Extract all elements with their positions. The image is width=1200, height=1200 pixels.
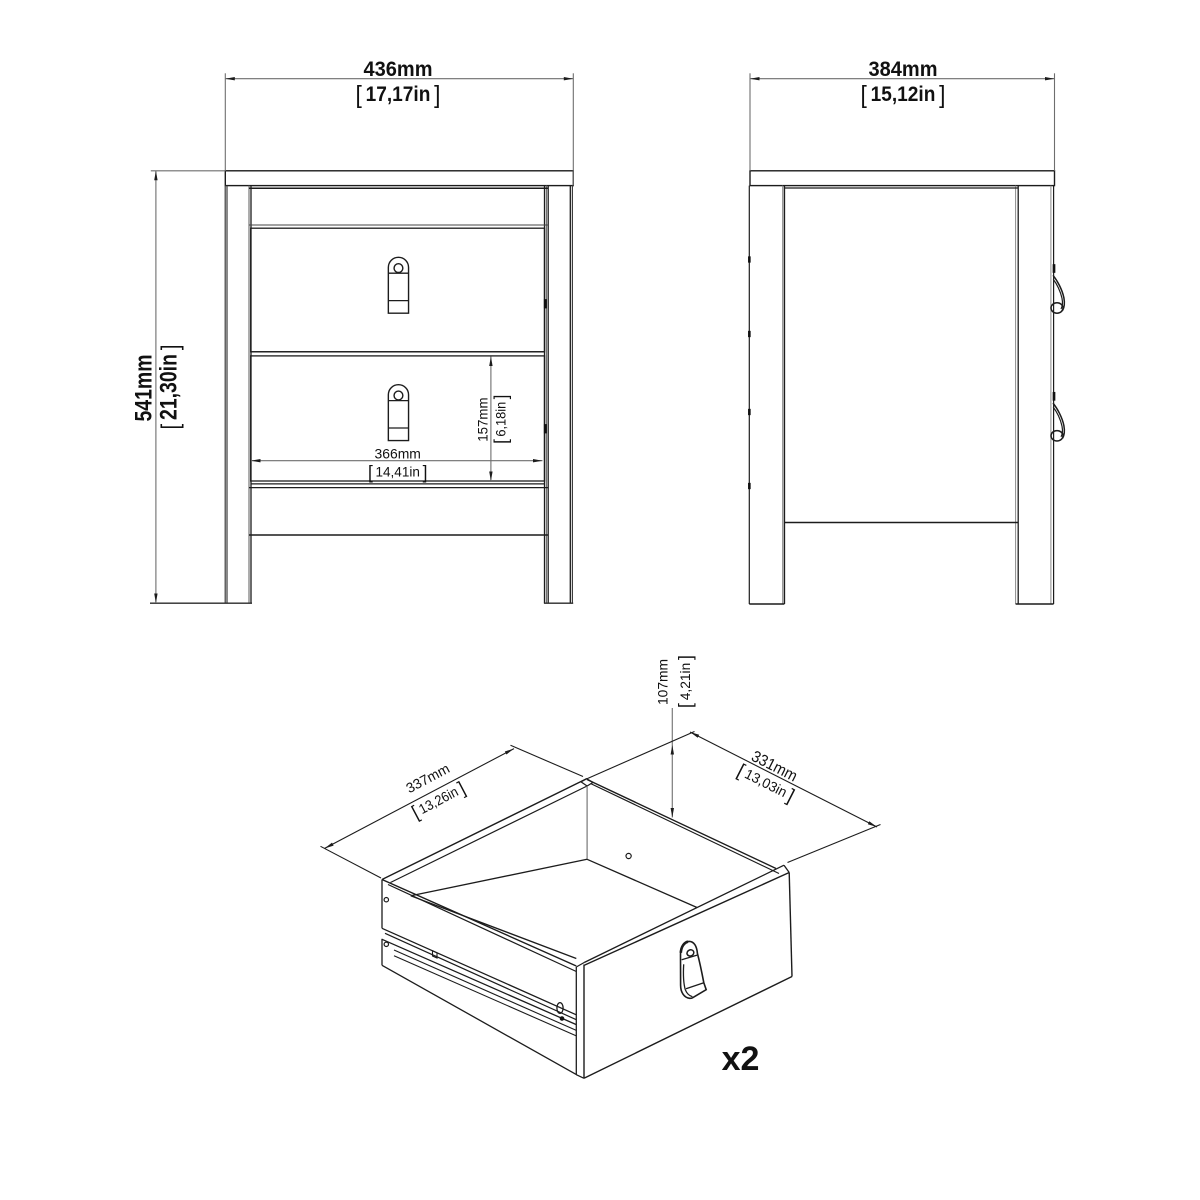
svg-text:[ 21,30in ]: [ 21,30in ] xyxy=(156,345,185,430)
svg-text:541mm: 541mm xyxy=(131,355,158,422)
svg-text:[ 15,12in ]: [ 15,12in ] xyxy=(861,81,946,109)
svg-text:366mm: 366mm xyxy=(375,445,421,461)
svg-text:157mm: 157mm xyxy=(474,398,490,442)
svg-text:436mm: 436mm xyxy=(364,58,433,81)
svg-text:[ 17,17in ]: [ 17,17in ] xyxy=(356,81,441,109)
svg-text:[ 14,41in ]: [ 14,41in ] xyxy=(368,462,427,482)
svg-text:[ 4,21in ]: [ 4,21in ] xyxy=(676,655,696,708)
svg-text:107mm: 107mm xyxy=(654,659,670,705)
svg-text:x2: x2 xyxy=(722,1040,760,1078)
svg-text:[ 6,18in ]: [ 6,18in ] xyxy=(491,395,511,444)
svg-text:384mm: 384mm xyxy=(869,58,938,81)
